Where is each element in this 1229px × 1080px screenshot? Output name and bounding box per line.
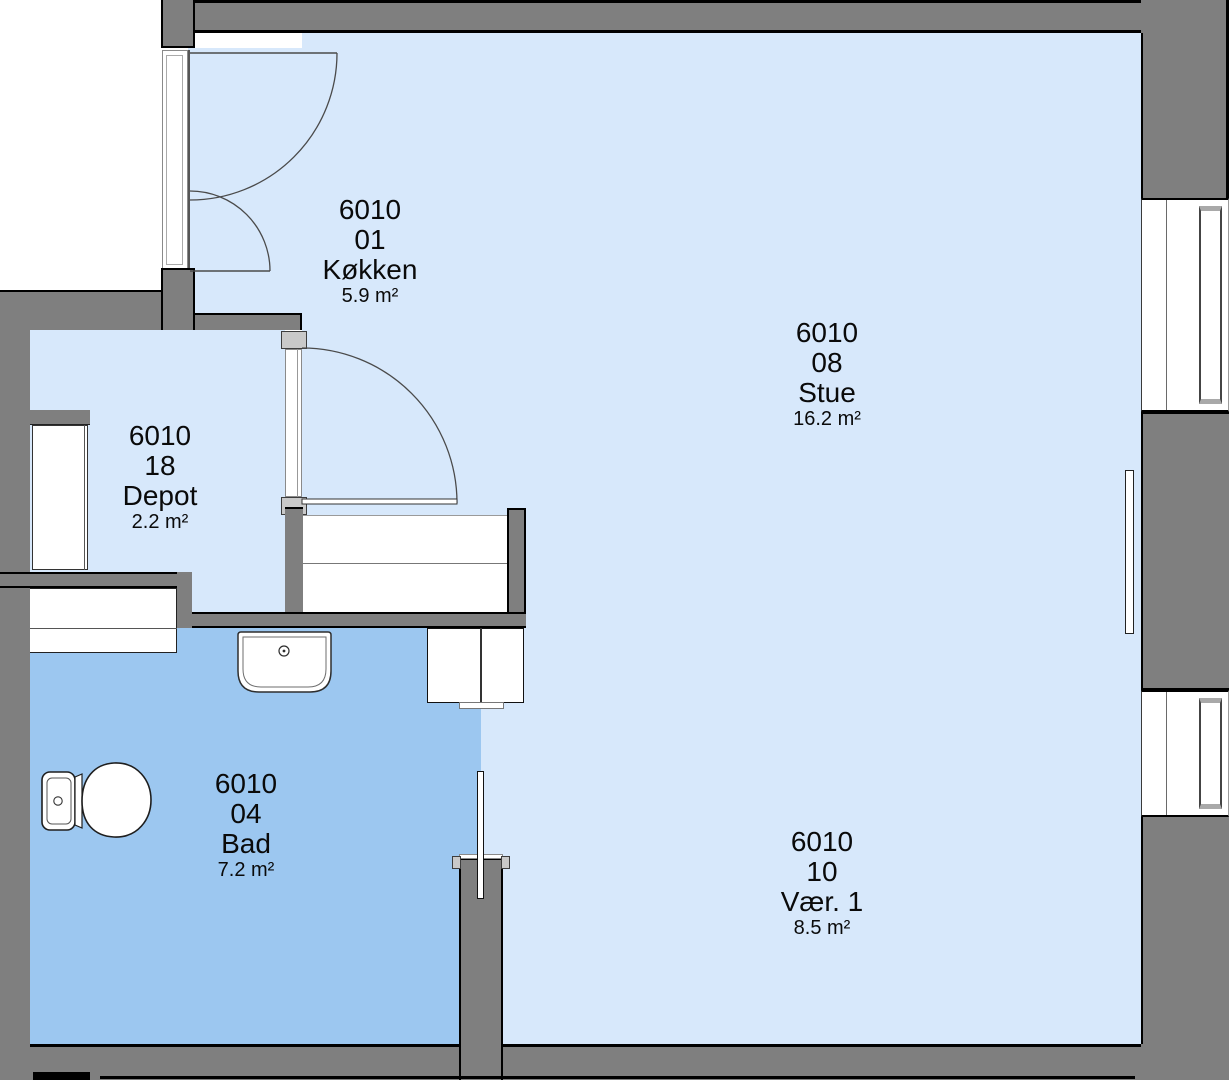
- sink-fixture: [238, 632, 331, 692]
- room-area: 7.2 m²: [146, 859, 346, 882]
- room-name: Stue: [727, 378, 927, 408]
- room-number: 18: [60, 451, 260, 481]
- room-name: Depot: [60, 481, 260, 511]
- floor-plan: 6010 01 Køkken 5.9 m² 6010 08 Stue 16.2 …: [0, 0, 1229, 1080]
- room-area: 5.9 m²: [270, 285, 470, 308]
- toilet-fixture: [42, 763, 151, 837]
- room-name: Vær. 1: [722, 887, 922, 917]
- room-number: 10: [722, 857, 922, 887]
- depot-door-swing: [302, 348, 457, 504]
- room-area: 2.2 m²: [60, 511, 260, 534]
- room-building-no: 6010: [60, 421, 260, 451]
- room-name: Køkken: [270, 255, 470, 285]
- fixtures-layer: [0, 0, 1229, 1080]
- room-label-bad: 6010 04 Bad 7.2 m²: [146, 769, 346, 882]
- room-number: 08: [727, 348, 927, 378]
- room-building-no: 6010: [270, 195, 470, 225]
- room-building-no: 6010: [146, 769, 346, 799]
- room-number: 04: [146, 799, 346, 829]
- room-area: 8.5 m²: [722, 917, 922, 940]
- room-label-depot: 6010 18 Depot 2.2 m²: [60, 421, 260, 534]
- room-number: 01: [270, 225, 470, 255]
- room-building-no: 6010: [722, 827, 922, 857]
- room-area: 16.2 m²: [727, 408, 927, 431]
- room-label-stue: 6010 08 Stue 16.2 m²: [727, 318, 927, 431]
- room-label-koekken: 6010 01 Køkken 5.9 m²: [270, 195, 470, 308]
- room-building-no: 6010: [727, 318, 927, 348]
- room-name: Bad: [146, 829, 346, 859]
- room-label-vaer1: 6010 10 Vær. 1 8.5 m²: [722, 827, 922, 940]
